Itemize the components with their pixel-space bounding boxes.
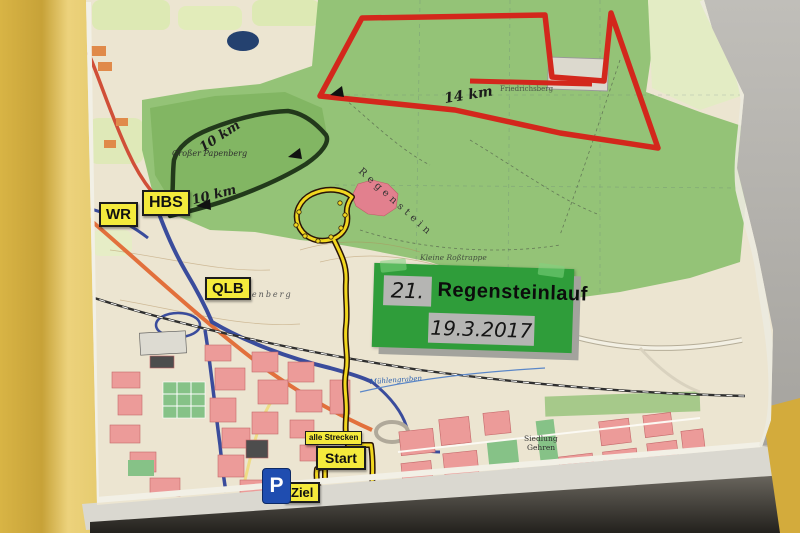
- place-grosser-papenberg: Großer Papenberg: [172, 149, 247, 158]
- race-number: 21.: [383, 275, 432, 306]
- event-sign: 21. Regensteinlauf 19.3.2017: [372, 263, 575, 353]
- parking-sign: P: [262, 468, 291, 504]
- place-siedlung: Siedlung: [524, 434, 558, 443]
- station-label-wr: WR: [99, 202, 138, 227]
- race-date: 19.3.2017: [428, 313, 535, 346]
- wall-left: [0, 0, 100, 533]
- station-label-hbs: HBS: [142, 190, 190, 216]
- map-photo: 14 km 10 km ← 10 km Großer Papenberg Reg…: [0, 0, 800, 533]
- race-title: Regensteinlauf: [437, 279, 588, 307]
- start-label: Start: [316, 446, 366, 470]
- station-label-qlb: QLB: [205, 277, 251, 300]
- all-courses-label: alle Strecken: [305, 431, 362, 445]
- place-kleine-rosstrappe: Kleine Roßtrappe: [419, 253, 487, 262]
- place-gehren: Gehren: [527, 443, 555, 452]
- place-friedrichsberg: Friedrichsberg: [500, 85, 554, 93]
- pond: [227, 31, 259, 51]
- tape-right: [538, 263, 565, 278]
- tape-left: [380, 258, 407, 273]
